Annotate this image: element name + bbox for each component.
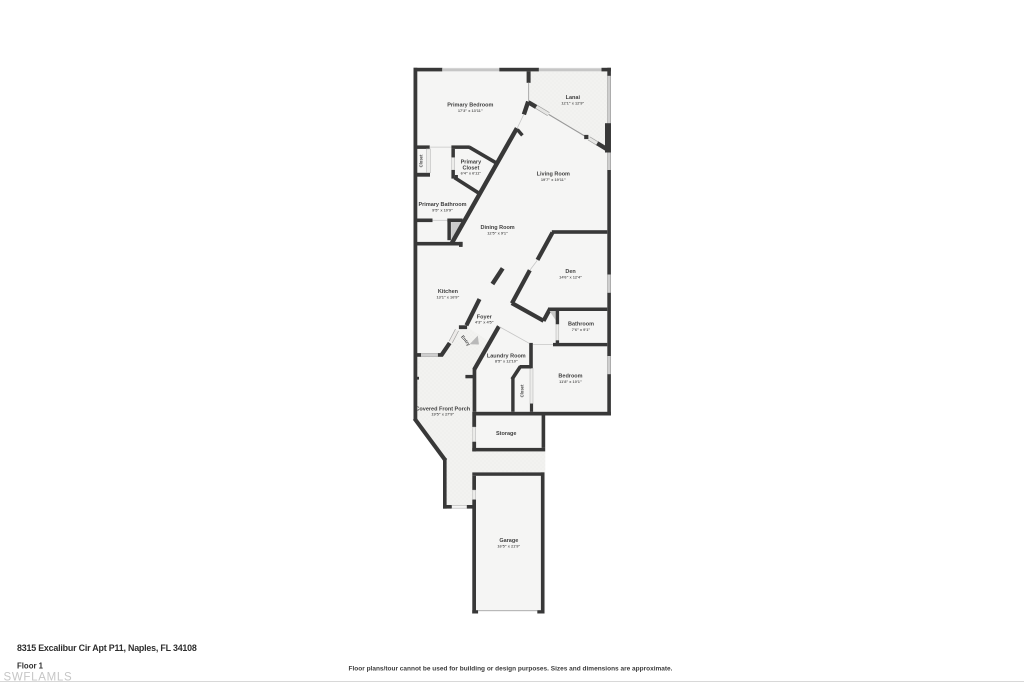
svg-text:14'6" x 12'4": 14'6" x 12'4"	[559, 275, 582, 280]
svg-text:19'7" x 19'11": 19'7" x 19'11"	[541, 177, 566, 182]
svg-text:12'5" x 9'1": 12'5" x 9'1"	[487, 231, 508, 236]
svg-text:16'5" x 21'9": 16'5" x 21'9"	[497, 544, 520, 549]
svg-text:13'1" x 16'9": 13'1" x 16'9"	[436, 294, 459, 299]
svg-text:6'4" x 6'11": 6'4" x 6'11"	[461, 171, 482, 176]
svg-text:7'6" x 9'1": 7'6" x 9'1"	[572, 327, 591, 332]
svg-text:4'3" x 4'5": 4'3" x 4'5"	[475, 320, 494, 325]
svg-text:Floor 1: Floor 1	[17, 661, 44, 670]
svg-text:Floor plans/tour cannot be use: Floor plans/tour cannot be used for buil…	[349, 666, 673, 673]
svg-text:Primary: Primary	[461, 159, 482, 165]
svg-text:12'1" x 12'9": 12'1" x 12'9"	[561, 100, 584, 105]
svg-text:11'8" x 10'1": 11'8" x 10'1"	[559, 379, 582, 384]
svg-text:Storage: Storage	[496, 431, 516, 437]
svg-text:Closet: Closet	[418, 154, 423, 167]
svg-text:19'5" x 27'9": 19'5" x 27'9"	[431, 412, 454, 417]
svg-text:Closet: Closet	[519, 384, 524, 397]
svg-text:SWFLAMLS: SWFLAMLS	[4, 671, 73, 682]
svg-text:9'5" x 10'9": 9'5" x 10'9"	[432, 207, 453, 212]
svg-text:17'3" x 13'11": 17'3" x 13'11"	[458, 108, 483, 113]
svg-text:8315 Excalibur Cir Apt P11, Na: 8315 Excalibur Cir Apt P11, Naples, FL 3…	[17, 643, 197, 653]
svg-text:8'5" x 12'10": 8'5" x 12'10"	[495, 359, 518, 364]
